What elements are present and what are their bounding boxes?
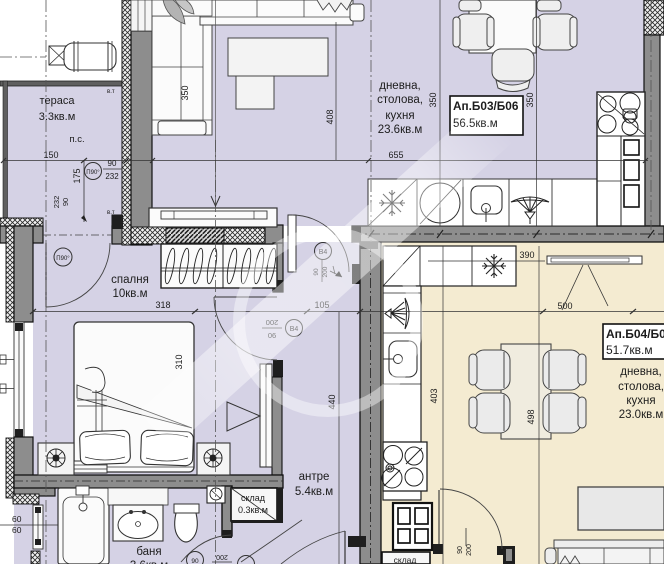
- svg-text:п.с.: п.с.: [69, 134, 84, 145]
- svg-text:в.т: в.т: [107, 210, 115, 216]
- svg-text:столова,: столова,: [618, 381, 664, 393]
- svg-text:Ап.Б04/Б0: Ап.Б04/Б0: [606, 327, 664, 341]
- svg-text:баня: баня: [136, 546, 161, 558]
- svg-text:5.4кв.м: 5.4кв.м: [295, 486, 333, 498]
- svg-text:дневна,: дневна,: [620, 366, 662, 378]
- svg-text:В4: В4: [319, 249, 328, 256]
- svg-text:56.5кв.м: 56.5кв.м: [453, 118, 498, 130]
- svg-text:500: 500: [557, 301, 572, 311]
- svg-text:столова,: столова,: [377, 94, 423, 106]
- svg-text:склад: склад: [241, 493, 266, 503]
- svg-text:3.3кв.м: 3.3кв.м: [39, 111, 76, 123]
- svg-text:60: 60: [12, 525, 22, 535]
- svg-text:дневна,: дневна,: [379, 80, 421, 92]
- svg-text:150: 150: [43, 150, 58, 160]
- svg-text:350: 350: [525, 92, 535, 107]
- svg-text:кухня: кухня: [385, 110, 414, 122]
- svg-text:90: 90: [61, 198, 70, 206]
- svg-text:склад: склад: [394, 555, 417, 564]
- svg-text:06: 06: [268, 331, 276, 340]
- svg-text:232: 232: [52, 196, 61, 209]
- svg-text:П90°: П90°: [56, 256, 70, 262]
- svg-text:В4: В4: [290, 326, 299, 333]
- svg-text:90: 90: [108, 159, 117, 168]
- svg-text:кухня: кухня: [626, 395, 655, 407]
- svg-text:23.6кв.м: 23.6кв.м: [378, 124, 423, 136]
- svg-text:350: 350: [180, 85, 190, 100]
- svg-text:60: 60: [12, 514, 22, 524]
- svg-text:318: 318: [155, 300, 170, 310]
- svg-text:10кв.м: 10кв.м: [112, 288, 147, 300]
- svg-text:антре: антре: [299, 471, 330, 483]
- svg-text:спалня: спалня: [111, 274, 149, 286]
- svg-text:в.т: в.т: [107, 89, 115, 95]
- svg-text:440: 440: [327, 394, 337, 409]
- svg-text:3.6кв.м: 3.6кв.м: [130, 560, 168, 564]
- svg-text:655: 655: [388, 150, 403, 160]
- svg-text:408: 408: [325, 109, 335, 124]
- svg-text:П90°: П90°: [86, 170, 100, 176]
- svg-text:200: 200: [216, 553, 228, 560]
- svg-text:0.3кв.м: 0.3кв.м: [238, 505, 268, 515]
- svg-text:200: 200: [466, 544, 473, 556]
- svg-text:90: 90: [313, 268, 320, 276]
- svg-text:90: 90: [191, 558, 199, 564]
- svg-text:23.0кв.м: 23.0кв.м: [619, 409, 664, 421]
- svg-text:175: 175: [72, 168, 82, 183]
- svg-text:200: 200: [266, 318, 279, 327]
- svg-text:90: 90: [457, 546, 464, 554]
- svg-text:51.7кв.м: 51.7кв.м: [606, 343, 653, 357]
- svg-text:350: 350: [428, 92, 438, 107]
- svg-text:310: 310: [174, 354, 184, 369]
- svg-text:тераса: тераса: [40, 95, 76, 107]
- svg-text:498: 498: [526, 409, 536, 424]
- svg-text:390: 390: [519, 250, 534, 260]
- svg-text:403: 403: [429, 388, 439, 403]
- svg-text:232: 232: [105, 172, 119, 181]
- svg-text:200: 200: [322, 266, 329, 277]
- svg-text:105: 105: [314, 300, 329, 310]
- svg-text:Ап.Б03/Б06: Ап.Б03/Б06: [453, 99, 519, 113]
